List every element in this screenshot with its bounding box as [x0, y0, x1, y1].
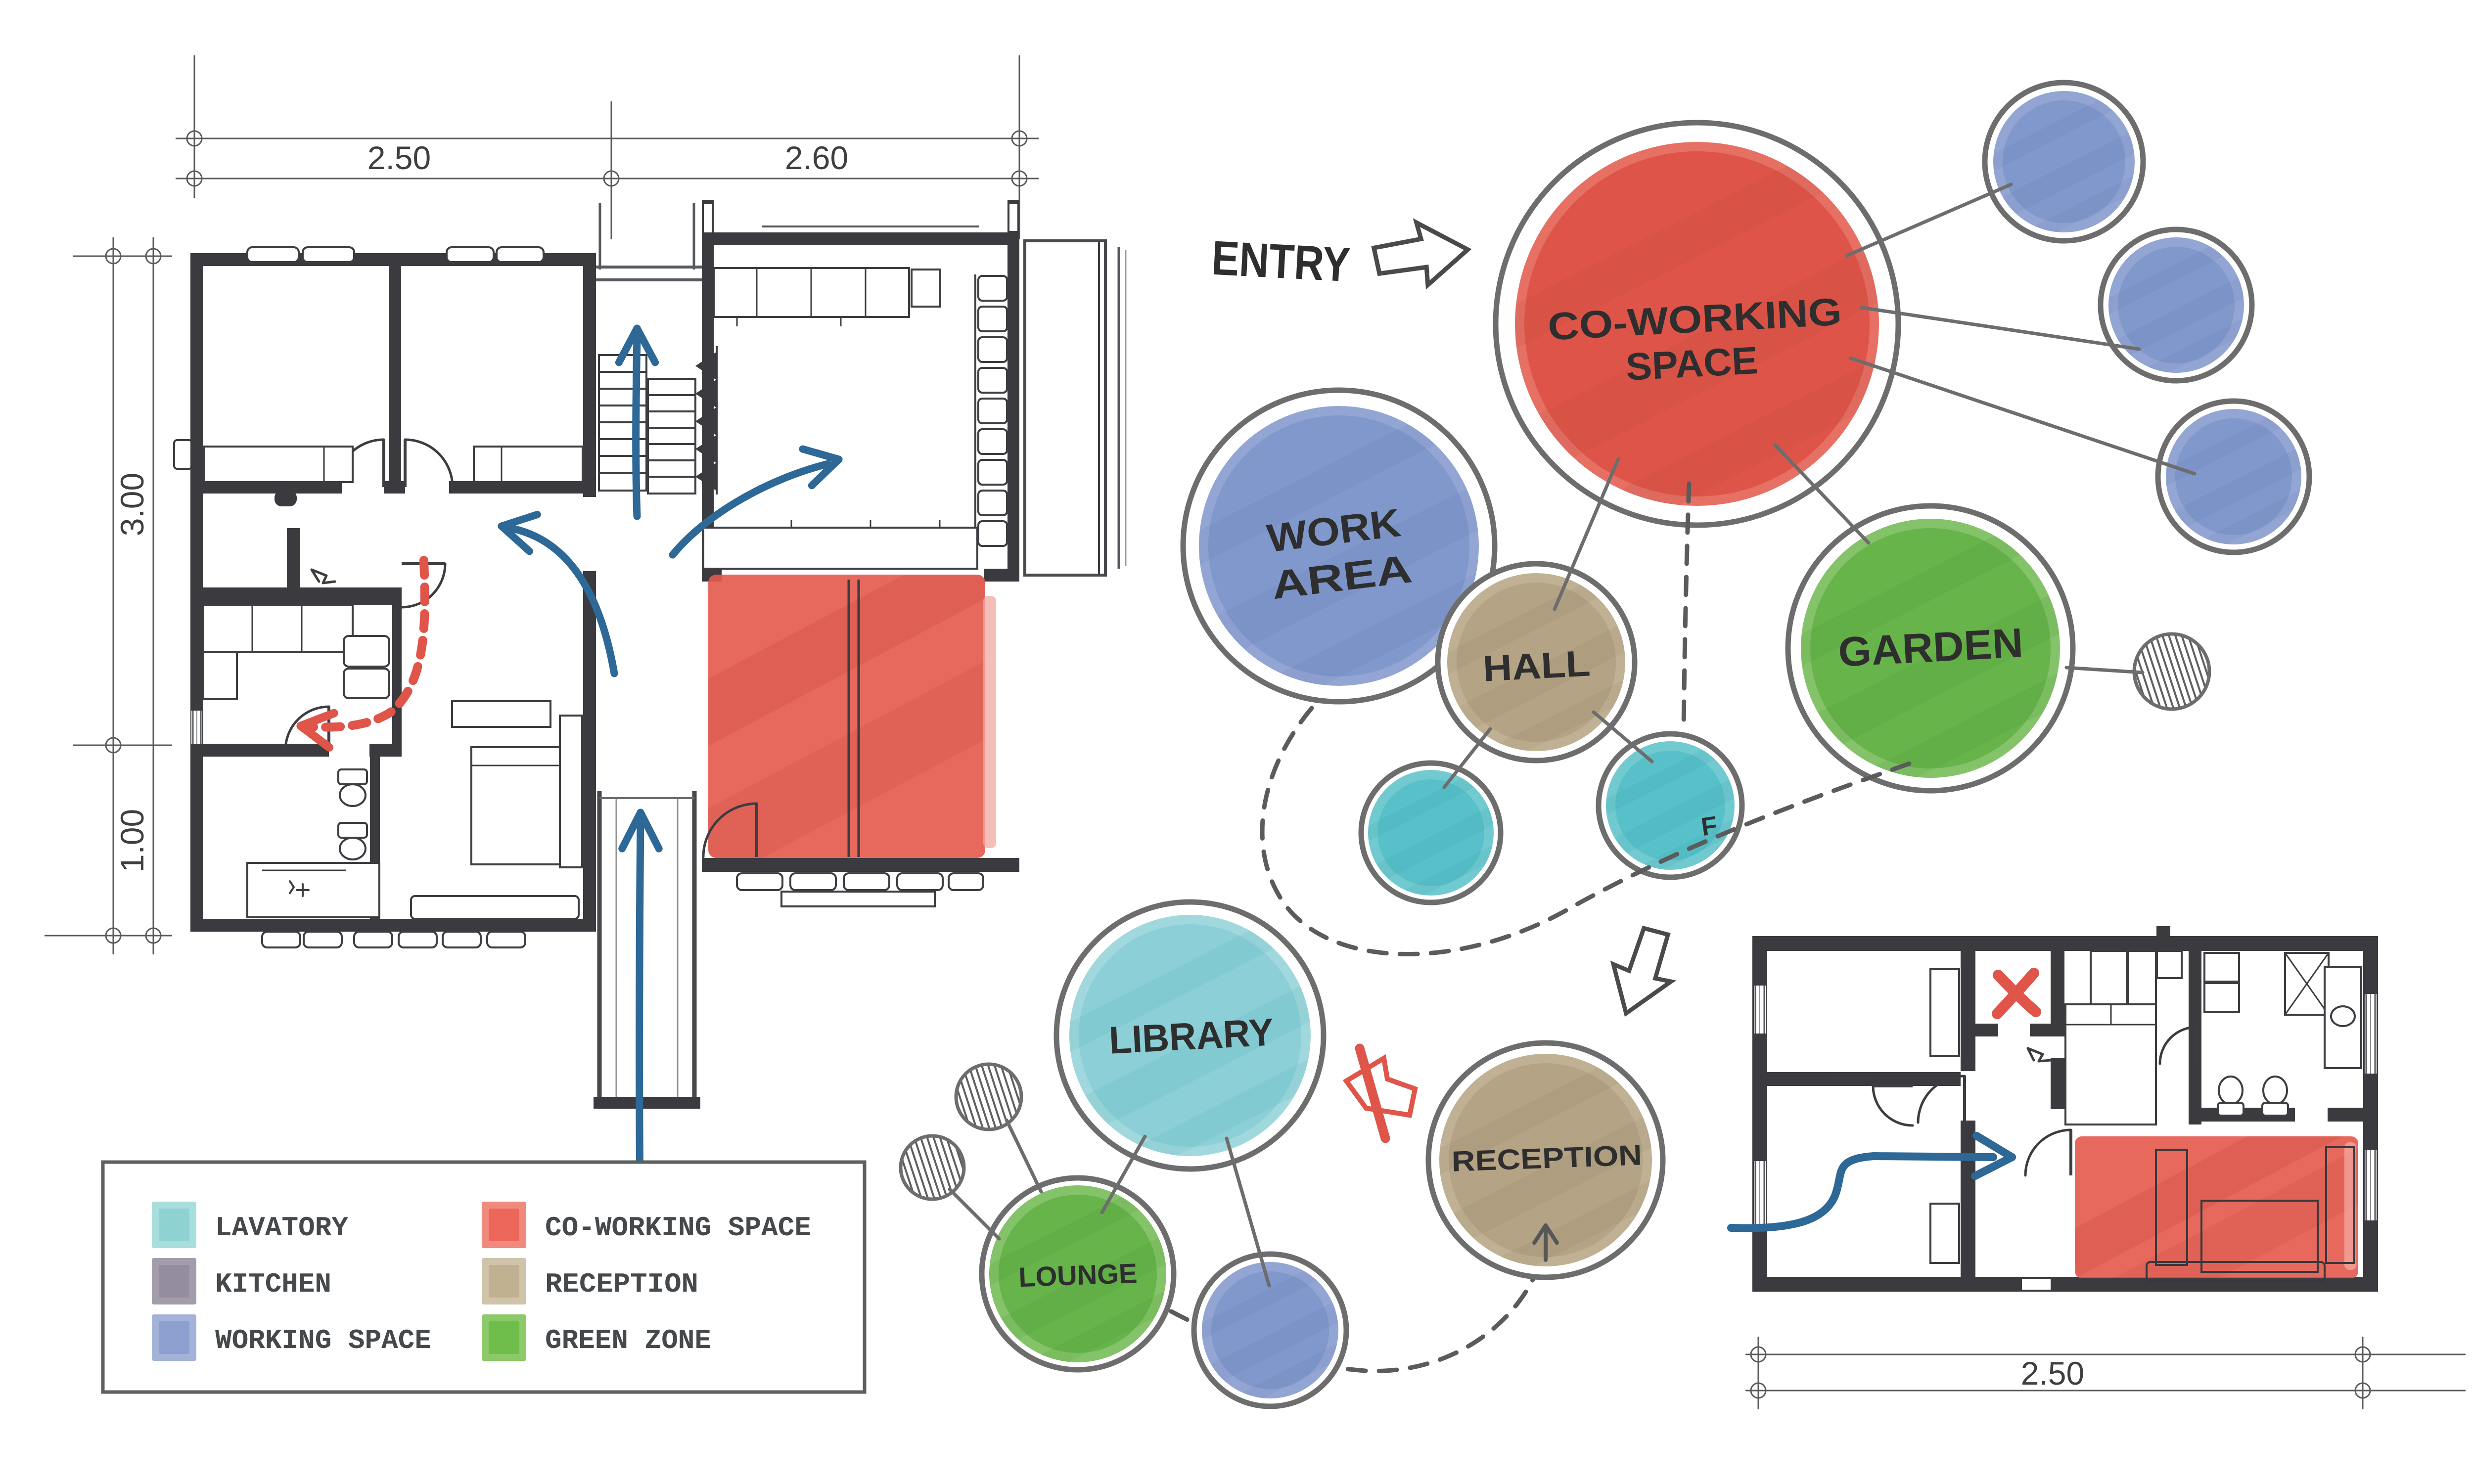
svg-text:2.50: 2.50: [367, 139, 431, 176]
svg-text:KITCHEN: KITCHEN: [215, 1268, 331, 1300]
svg-text:RECEPTION: RECEPTION: [545, 1268, 698, 1300]
svg-text:WORKING SPACE: WORKING SPACE: [215, 1325, 431, 1356]
svg-text:LIBRARY: LIBRARY: [1108, 1010, 1275, 1062]
svg-text:2.60: 2.60: [785, 139, 848, 176]
svg-text:LOUNGE: LOUNGE: [1018, 1258, 1138, 1293]
svg-text:RECEPTION: RECEPTION: [1451, 1139, 1643, 1177]
svg-text:HALL: HALL: [1482, 642, 1591, 689]
svg-text:GARDEN: GARDEN: [1837, 619, 2024, 675]
svg-text:3.00: 3.00: [114, 473, 150, 536]
svg-text:SPACE: SPACE: [1625, 338, 1759, 389]
svg-text:GREEN ZONE: GREEN ZONE: [545, 1325, 711, 1356]
svg-text:ENTRY: ENTRY: [1210, 230, 1351, 292]
svg-text:1.00: 1.00: [114, 809, 150, 872]
svg-text:LAVATORY: LAVATORY: [215, 1212, 348, 1244]
svg-text:CO-WORKING SPACE: CO-WORKING SPACE: [545, 1212, 811, 1244]
svg-text:2.50: 2.50: [2021, 1355, 2084, 1392]
